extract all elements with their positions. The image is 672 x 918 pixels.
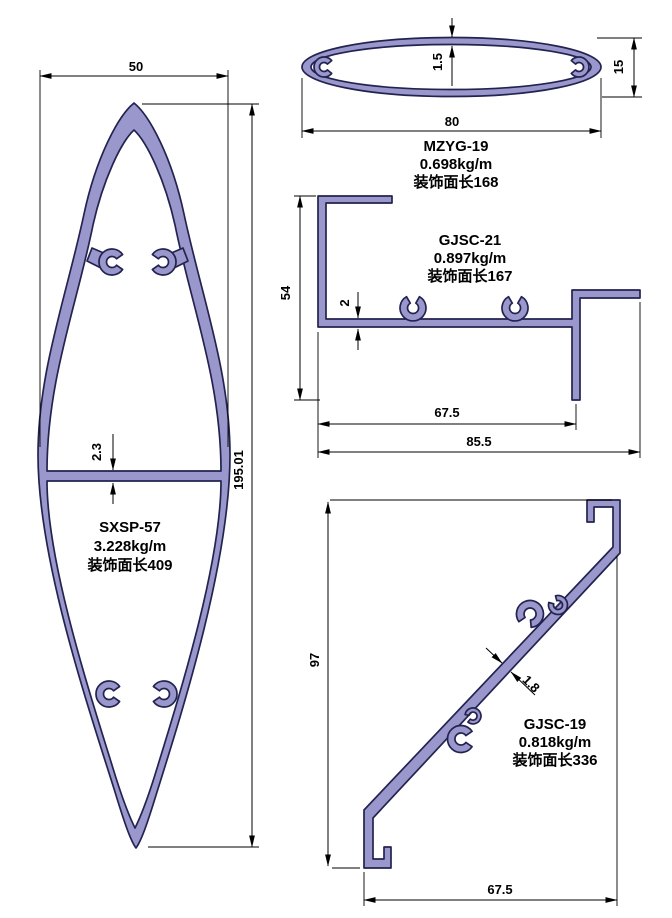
sxsp57-clip-upper-left [99,249,123,275]
gjsc19-height-value: 97 [307,653,322,667]
gjsc21-weight-label: 0.897kg/m [434,250,507,267]
sxsp57-width-value: 50 [129,59,143,74]
gjsc21-surface-label: 装饰面长167 [426,267,512,285]
gjsc21-height-value: 54 [278,285,293,300]
gjsc21-body [318,196,640,400]
drawing-svg: 50 195.01 2.3 SXSP-57 3.228kg/m 装饰面长409 … [0,0,672,918]
gjsc19-wall-arrow-upper [486,648,502,663]
mzyg19-clip-right [571,57,589,77]
gjsc19-weight-label: 0.818kg/m [519,734,592,751]
mzyg19-surface-label: 装饰面长168 [412,173,498,191]
sxsp57-clip-upper-right [152,249,176,275]
gjsc21-screw-boss-right [502,297,528,321]
gjsc21-screw-boss-left [400,297,426,321]
mzyg19-wall-value: 1.5 [430,53,445,71]
gjsc19-screw-curl-lower [448,726,473,753]
gjsc19-name-label: GJSC-19 [524,716,587,733]
mzyg19-weight-label: 0.698kg/m [420,156,493,173]
mzyg19-height-value: 15 [611,60,626,74]
gjsc21-web-value: 2 [337,299,352,306]
sxsp57-weight-label: 3.228kg/m [94,538,167,555]
sxsp57-height-value: 195.01 [231,450,246,490]
gjsc21-total-width-value: 85.5 [466,434,491,449]
sxsp57-clip-lower-right [153,681,177,707]
profile-gjsc21: 54 2 67.5 85.5 GJSC-21 0.897kg/m 装饰面长167 [278,196,640,458]
gjsc21-name-label: GJSC-21 [439,232,502,249]
gjsc19-body [364,500,620,868]
sxsp57-clip-lower-left [96,681,120,707]
profile-mzyg19: 1.5 15 80 MZYG-19 0.698kg/m 装饰面长168 [302,18,642,191]
profile-gjsc19: 97 1.8 67.5 GJSC-19 0.818kg/m 装饰面长336 [307,500,620,906]
gjsc19-width-value: 67.5 [487,882,512,897]
gjsc21-inner-width-value: 67.5 [434,405,459,420]
sxsp57-surface-label: 装饰面长409 [86,556,172,574]
sxsp57-body [38,103,230,848]
profile-sxsp57: 50 195.01 2.3 SXSP-57 3.228kg/m 装饰面长409 [38,59,259,848]
sxsp57-name-label: SXSP-57 [99,519,161,536]
gjsc19-surface-label: 装饰面长336 [511,751,597,769]
gjsc19-wall-value: 1.8 [519,672,542,695]
gjsc19-screw-curl-upper [516,600,543,627]
mzyg19-clip-left [314,57,332,77]
sxsp57-web-value: 2.3 [89,443,104,461]
mzyg19-name-label: MZYG-19 [423,138,488,155]
mzyg19-width-value: 80 [445,114,459,129]
extrusion-profile-drawing: 50 195.01 2.3 SXSP-57 3.228kg/m 装饰面长409 … [0,0,672,918]
